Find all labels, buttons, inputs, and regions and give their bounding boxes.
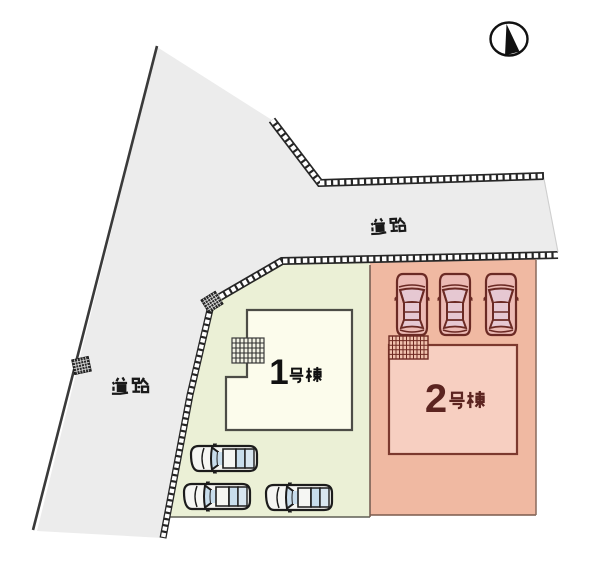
svg-text:2: 2	[425, 377, 447, 421]
svg-text:1: 1	[269, 353, 288, 392]
